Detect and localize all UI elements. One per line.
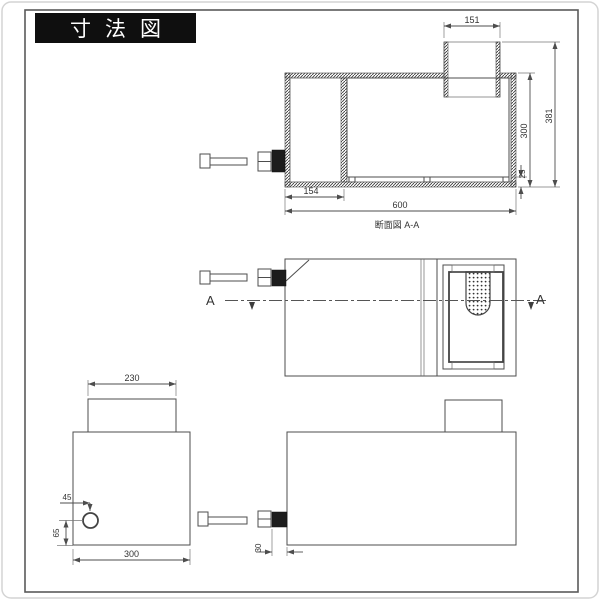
body-width-dim: 300 xyxy=(73,549,190,565)
section-line: A A xyxy=(206,292,546,310)
tank-wall-bottom xyxy=(285,182,516,187)
end-view: 230 45 65 300 xyxy=(52,373,190,565)
base-gap-dim-label: 25 xyxy=(518,169,527,178)
drawing-svg: 151 381 300 25 154 xyxy=(0,0,600,600)
inner-liner xyxy=(347,78,509,177)
section-label-right: A xyxy=(536,292,545,307)
front-riser-outline xyxy=(445,400,502,432)
pipe-fitting xyxy=(272,270,286,286)
inlet-pipe-plan xyxy=(200,269,286,286)
riser-width-dim: 151 xyxy=(444,15,500,38)
body-width-dim-label: 300 xyxy=(124,549,139,559)
inlet-pipe-section xyxy=(200,150,285,172)
end-lid-outline xyxy=(88,399,176,432)
body-height-dim-label: 300 xyxy=(519,123,529,138)
riser-outline xyxy=(444,42,500,97)
inlet-offset-dim: 154 xyxy=(285,186,344,201)
tank-inner-outline xyxy=(290,78,511,182)
pipe-cap xyxy=(200,154,210,168)
total-width-dim: 600 xyxy=(285,189,516,215)
plan-corner-chamfer xyxy=(286,260,309,281)
front-body-outline xyxy=(287,432,516,545)
section-caption: 断面図 A-A xyxy=(375,219,420,230)
dimension-drawing-page: 151 381 300 25 154 xyxy=(0,0,600,600)
riser-wall-left xyxy=(444,42,448,97)
tank-wall-left xyxy=(285,73,290,187)
section-label-left: A xyxy=(206,293,215,308)
page-title: 寸法図 xyxy=(56,13,175,43)
pipe-offset-y-dim-label: 65 xyxy=(52,528,61,537)
pipe-shaft xyxy=(208,517,247,524)
pipe-fitting xyxy=(272,512,287,527)
pipe-offset-x-dim-label: 45 xyxy=(63,493,72,502)
front-view: 30 xyxy=(198,400,516,556)
pipe-cap xyxy=(198,512,208,526)
section-arrow-left xyxy=(249,302,255,310)
total-height-dim-label: 381 xyxy=(544,108,554,123)
lid-width-dim: 230 xyxy=(88,373,176,396)
drain-hole xyxy=(83,513,98,528)
pipe-shaft xyxy=(210,158,247,165)
liner-foot-left xyxy=(349,177,355,182)
pipe-offset-x-dim: 45 xyxy=(60,493,90,511)
tank-partition xyxy=(341,78,347,182)
section-arrow-right xyxy=(528,302,534,310)
tank-wall-right xyxy=(511,73,516,187)
tank-wall-top-left xyxy=(285,73,444,78)
riser-wall-right xyxy=(496,42,500,97)
lid-width-dim-label: 230 xyxy=(124,373,139,383)
plan-view: A A xyxy=(200,259,546,376)
outlet-chamber-top-bar xyxy=(452,265,494,272)
section-view: 151 381 300 25 154 xyxy=(200,15,560,230)
pipe-fitting xyxy=(272,150,285,172)
inlet-pipe-front xyxy=(198,511,287,527)
strainer-basket xyxy=(466,272,490,315)
riser-width-dim-label: 151 xyxy=(464,15,479,25)
inlet-offset-dim-label: 154 xyxy=(303,186,318,196)
outlet-chamber-bottom-bar xyxy=(452,362,494,369)
title-bar: 寸法図 xyxy=(35,13,196,43)
liner-foot-middle xyxy=(424,177,430,182)
pipe-protrusion-dim-label: 30 xyxy=(254,543,263,552)
total-width-dim-label: 600 xyxy=(392,200,407,210)
liner-foot-right xyxy=(503,177,509,182)
pipe-protrusion-dim: 30 xyxy=(254,529,303,556)
pipe-offset-y-dim: 65 xyxy=(52,521,83,546)
pipe-cap xyxy=(200,271,210,284)
pipe-shaft xyxy=(210,274,247,281)
